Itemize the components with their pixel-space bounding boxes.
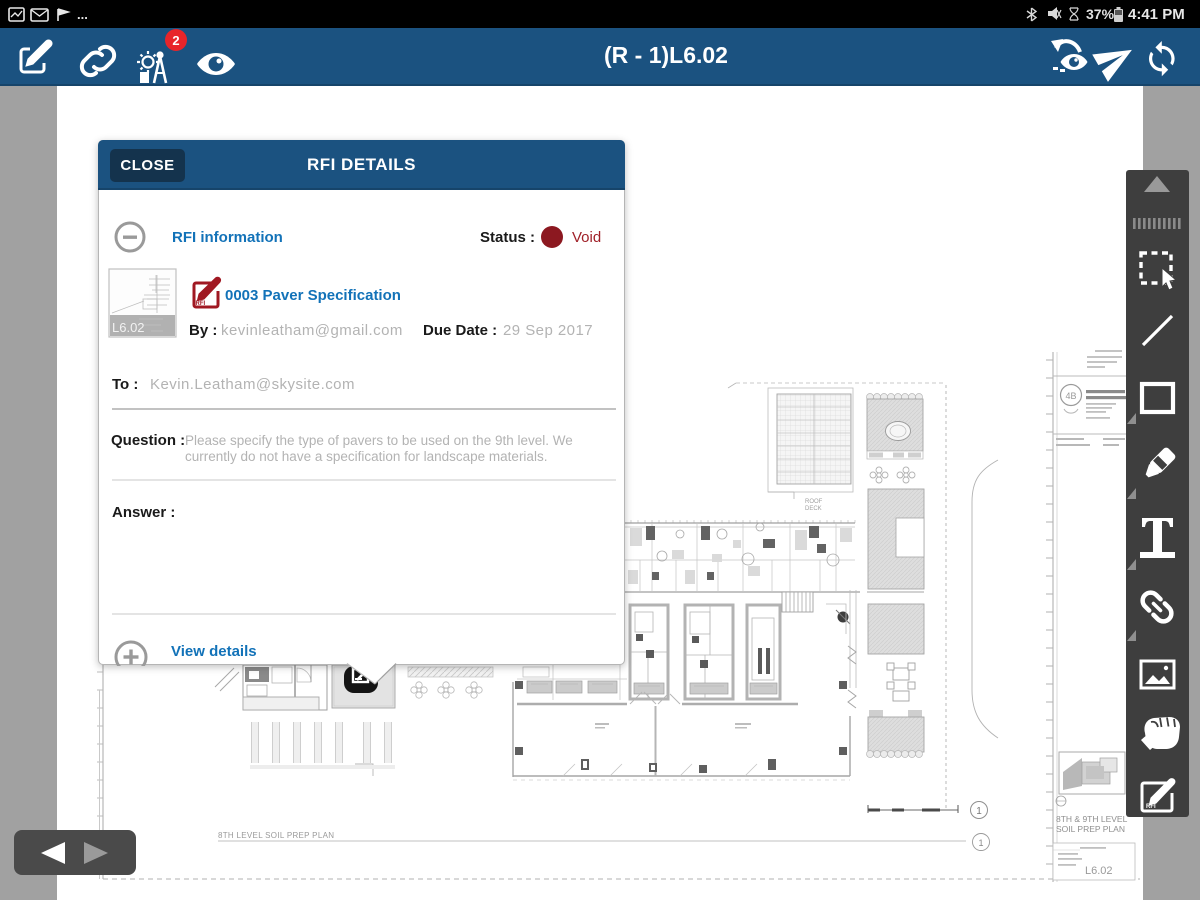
svg-text:1: 1 xyxy=(976,806,982,817)
svg-text:8TH LEVEL SOIL PREP PLAN: 8TH LEVEL SOIL PREP PLAN xyxy=(218,831,334,840)
svg-text:ROOF: ROOF xyxy=(805,499,823,505)
svg-text:DECK: DECK xyxy=(805,506,822,512)
svg-text:RFI: RFI xyxy=(1146,804,1156,810)
svg-text:4:41 PM: 4:41 PM xyxy=(1128,6,1185,23)
svg-text:2: 2 xyxy=(172,33,179,48)
svg-text:...: ... xyxy=(77,7,88,22)
svg-text:L6.02: L6.02 xyxy=(1085,865,1113,877)
svg-text:1: 1 xyxy=(978,838,983,848)
svg-text:L6.02: L6.02 xyxy=(112,320,145,335)
svg-text:37%: 37% xyxy=(1086,6,1115,22)
svg-text:8TH & 9TH LEVEL: 8TH & 9TH LEVEL xyxy=(1056,814,1128,824)
svg-text:4B: 4B xyxy=(1065,391,1076,401)
svg-text:RFI: RFI xyxy=(196,301,206,307)
svg-text:SOIL PREP PLAN: SOIL PREP PLAN xyxy=(1056,824,1125,834)
